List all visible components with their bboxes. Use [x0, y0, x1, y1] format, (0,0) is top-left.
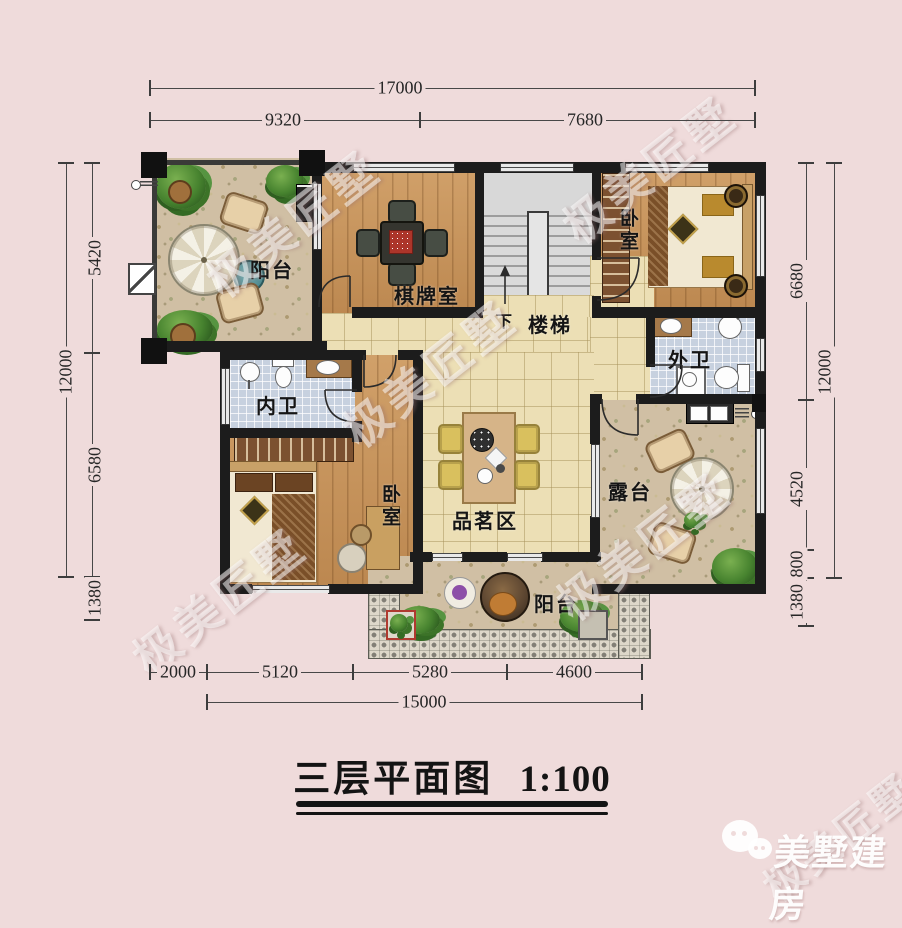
door-arc-bath-inner: [325, 390, 357, 422]
dim-tick: [149, 80, 151, 96]
dim-label-left-seg3: 1380: [85, 577, 106, 619]
dim-tick: [798, 625, 814, 627]
dim-tick: [84, 619, 100, 621]
bubble-eye: [731, 831, 736, 836]
dim-label-right-seg1: 6680: [787, 260, 808, 302]
dim-tick: [506, 664, 508, 680]
dim-line: [92, 163, 93, 620]
dim-tick: [206, 664, 208, 680]
dim-tick: [84, 352, 100, 354]
dim-label-top-seg1: 9320: [262, 110, 304, 131]
door-arc-bath-outer: [650, 365, 682, 397]
dim-tick: [826, 162, 842, 164]
title-text: 三层平面图: [293, 759, 493, 800]
dim-tick: [58, 162, 74, 164]
dim-label-left-seg1: 5420: [85, 237, 106, 279]
door-arc-bedroom-right: [597, 258, 639, 300]
page-title: 三层平面图 1:100: [293, 748, 611, 802]
dim-line: [150, 120, 755, 121]
door-arc-game-room: [319, 276, 350, 307]
title-scale: 1:100: [519, 759, 610, 800]
chat-bubble-icon-small: [748, 838, 772, 859]
dim-label-top-total: 17000: [375, 78, 426, 99]
dim-tick: [149, 664, 151, 680]
dim-label-bottom-total: 15000: [399, 692, 450, 713]
dim-label-left-seg2: 6580: [85, 444, 106, 486]
dim-tick: [754, 80, 756, 96]
dim-tick: [754, 112, 756, 128]
dim-tick: [58, 576, 74, 578]
door-arc-bedroom-left: [364, 355, 396, 387]
dim-label-left-total: 12000: [56, 347, 77, 398]
door-arc-terrace: [602, 399, 638, 435]
dim-label-top-seg2: 7680: [564, 110, 606, 131]
title-rule-thin: [296, 812, 608, 815]
dim-tick: [798, 162, 814, 164]
dim-tick: [352, 664, 354, 680]
dim-label-right-seg4: 1380: [787, 581, 808, 623]
dim-label-bottom-seg4: 4600: [553, 662, 595, 683]
dim-tick: [641, 664, 643, 680]
dim-tick: [149, 112, 151, 128]
dim-tick: [641, 694, 643, 710]
dim-label-right-seg2: 4520: [787, 468, 808, 510]
dim-tick: [798, 399, 814, 401]
bubble-eye: [754, 846, 758, 850]
bubble-eye: [742, 831, 747, 836]
dim-tick: [826, 577, 842, 579]
dim-label-right-seg3: 800: [787, 548, 808, 581]
bubble-eye: [761, 846, 765, 850]
dim-tick: [419, 112, 421, 128]
dim-label-bottom-seg3: 5280: [409, 662, 451, 683]
dim-label-right-total: 12000: [815, 347, 836, 398]
logo-text: 美墅建房: [767, 824, 902, 928]
title-rule-thick: [296, 801, 608, 807]
dim-line: [150, 88, 755, 89]
dim-label-bottom-seg1: 2000: [157, 662, 199, 683]
dim-tick: [206, 694, 208, 710]
dim-tick: [84, 162, 100, 164]
dim-label-bottom-seg2: 5120: [259, 662, 301, 683]
stair-arrow-head: [500, 265, 510, 276]
floor-plan-page: { "title": { "text": "三层平面图", "scale": "…: [0, 0, 902, 879]
